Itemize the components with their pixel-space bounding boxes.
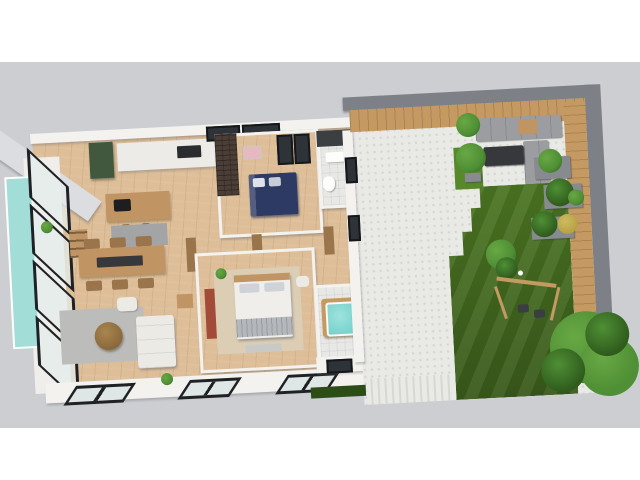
building-plan (30, 104, 615, 425)
brick-accent-wall (214, 133, 239, 196)
hedge (311, 385, 367, 399)
bed-pillow (264, 282, 284, 292)
outdoor-coffee-table (483, 145, 524, 166)
kitchen-cabinet-green (89, 142, 115, 179)
bedroom-window (276, 134, 294, 165)
bed-pillow (239, 283, 259, 293)
floor-plan-render (0, 0, 640, 480)
bed-throw (236, 317, 293, 338)
cooktop (177, 145, 202, 158)
side-table (177, 294, 194, 309)
bed-pillow (269, 177, 281, 187)
swing-seat (534, 309, 545, 318)
outdoor-side-table (518, 118, 538, 134)
dining-chair (86, 280, 103, 291)
living-sofa (136, 315, 177, 369)
dining-chair (138, 278, 155, 289)
wall-window (348, 215, 361, 242)
oak-door (323, 226, 334, 254)
bed-pillow (253, 178, 265, 188)
bedroom-art-pink (243, 146, 262, 160)
tree-pot (465, 172, 481, 182)
garden (341, 84, 624, 429)
island-sink (114, 199, 132, 212)
pouf (117, 297, 138, 312)
pouf (296, 276, 310, 288)
dining-chair (112, 279, 129, 290)
wall-window (345, 157, 358, 184)
gravel-path (370, 374, 451, 404)
bedroom-window (293, 133, 311, 164)
porch-window (326, 358, 353, 373)
swing-seat (518, 304, 529, 313)
